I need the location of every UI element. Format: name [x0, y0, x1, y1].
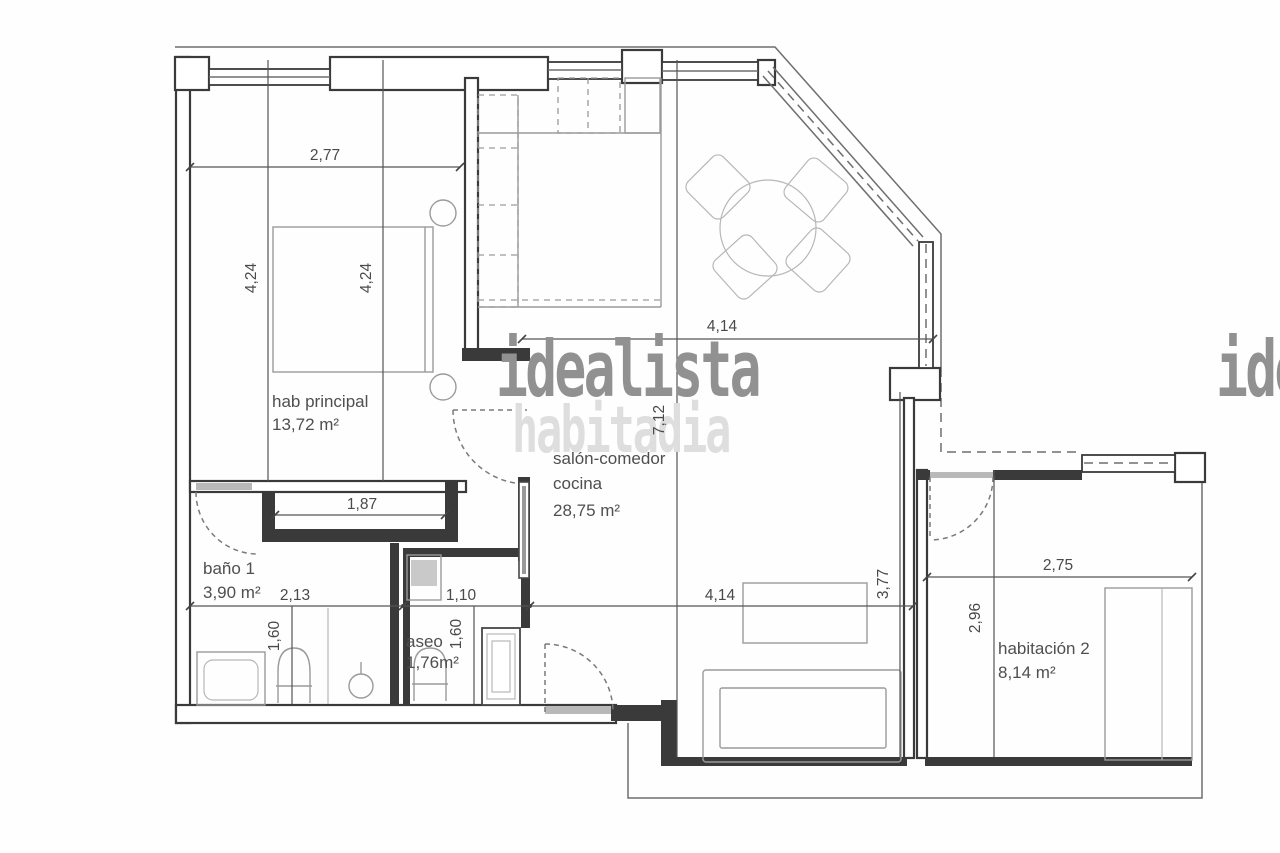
dim-salon-width-top: 4,14 [707, 318, 738, 335]
bedroom2-door-arc [930, 477, 993, 540]
room-label-salon-line2: cocina [553, 474, 603, 493]
tv-sideboard [743, 583, 867, 643]
sofa [703, 670, 901, 762]
dim-hab-width: 2,77 [310, 147, 340, 164]
toilet [276, 648, 312, 703]
aseo-washbasin [407, 555, 441, 600]
watermark-idealista-partial: idealista [1216, 323, 1280, 414]
watermarks: habitadia idealista idealista [496, 323, 1280, 467]
room-label-salon-line1: salón-comedor [553, 449, 666, 468]
sliding-door-panel [519, 482, 529, 578]
dim-salon-width-bottom: 4,14 [705, 587, 736, 604]
room-label-hab-principal: hab principal [272, 392, 368, 411]
dim-aseo-depth: 1,60 [448, 619, 465, 650]
bathroom-door-arc [196, 492, 258, 554]
dim-salon-right-height: 3,77 [875, 569, 892, 599]
dim-aseo-width: 1,10 [446, 587, 477, 604]
bedroom2-door-threshold [930, 472, 993, 478]
dim-salon-length: 7,12 [651, 405, 668, 435]
dim-hab-height-b: 4,24 [358, 263, 375, 294]
area-label-habitacion2: 8,14 m² [998, 663, 1056, 682]
watermark-idealista: idealista [496, 323, 759, 414]
area-label-hab-principal: 13,72 m² [272, 415, 339, 434]
dining-table [683, 152, 854, 303]
floor-plan-drawing: habitadia idealista idealista 2,77 4,24 … [0, 0, 1280, 853]
area-label-salon: 28,75 m² [553, 501, 620, 520]
area-label-aseo: 1,76m² [406, 653, 459, 672]
dim-hab2-height: 2,96 [967, 603, 984, 633]
floor-plan-page: habitadia idealista idealista 2,77 4,24 … [0, 0, 1280, 853]
entrance-door-arc [545, 644, 613, 712]
kitchen-cabinets [478, 78, 661, 307]
area-label-bano1: 3,90 m² [203, 583, 261, 602]
entrance-door-threshold [545, 706, 611, 714]
room-label-habitacion2: habitación 2 [998, 639, 1090, 658]
bathroom-door-threshold [196, 483, 252, 490]
dim-wardrobe-width: 1,87 [347, 496, 377, 513]
dim-bano-depth: 1,60 [266, 621, 283, 652]
dim-bano-width: 2,13 [280, 587, 310, 604]
single-bed [1105, 588, 1192, 760]
room-label-aseo: aseo [406, 632, 443, 651]
washbasin [349, 662, 373, 698]
dim-hab-height-a: 4,24 [243, 263, 260, 294]
shower [482, 628, 520, 705]
double-bed [273, 200, 456, 400]
bathtub [197, 652, 265, 705]
fridge [625, 78, 660, 133]
room-label-bano1: baño 1 [203, 559, 255, 578]
dim-hab2-width: 2,75 [1043, 557, 1073, 574]
